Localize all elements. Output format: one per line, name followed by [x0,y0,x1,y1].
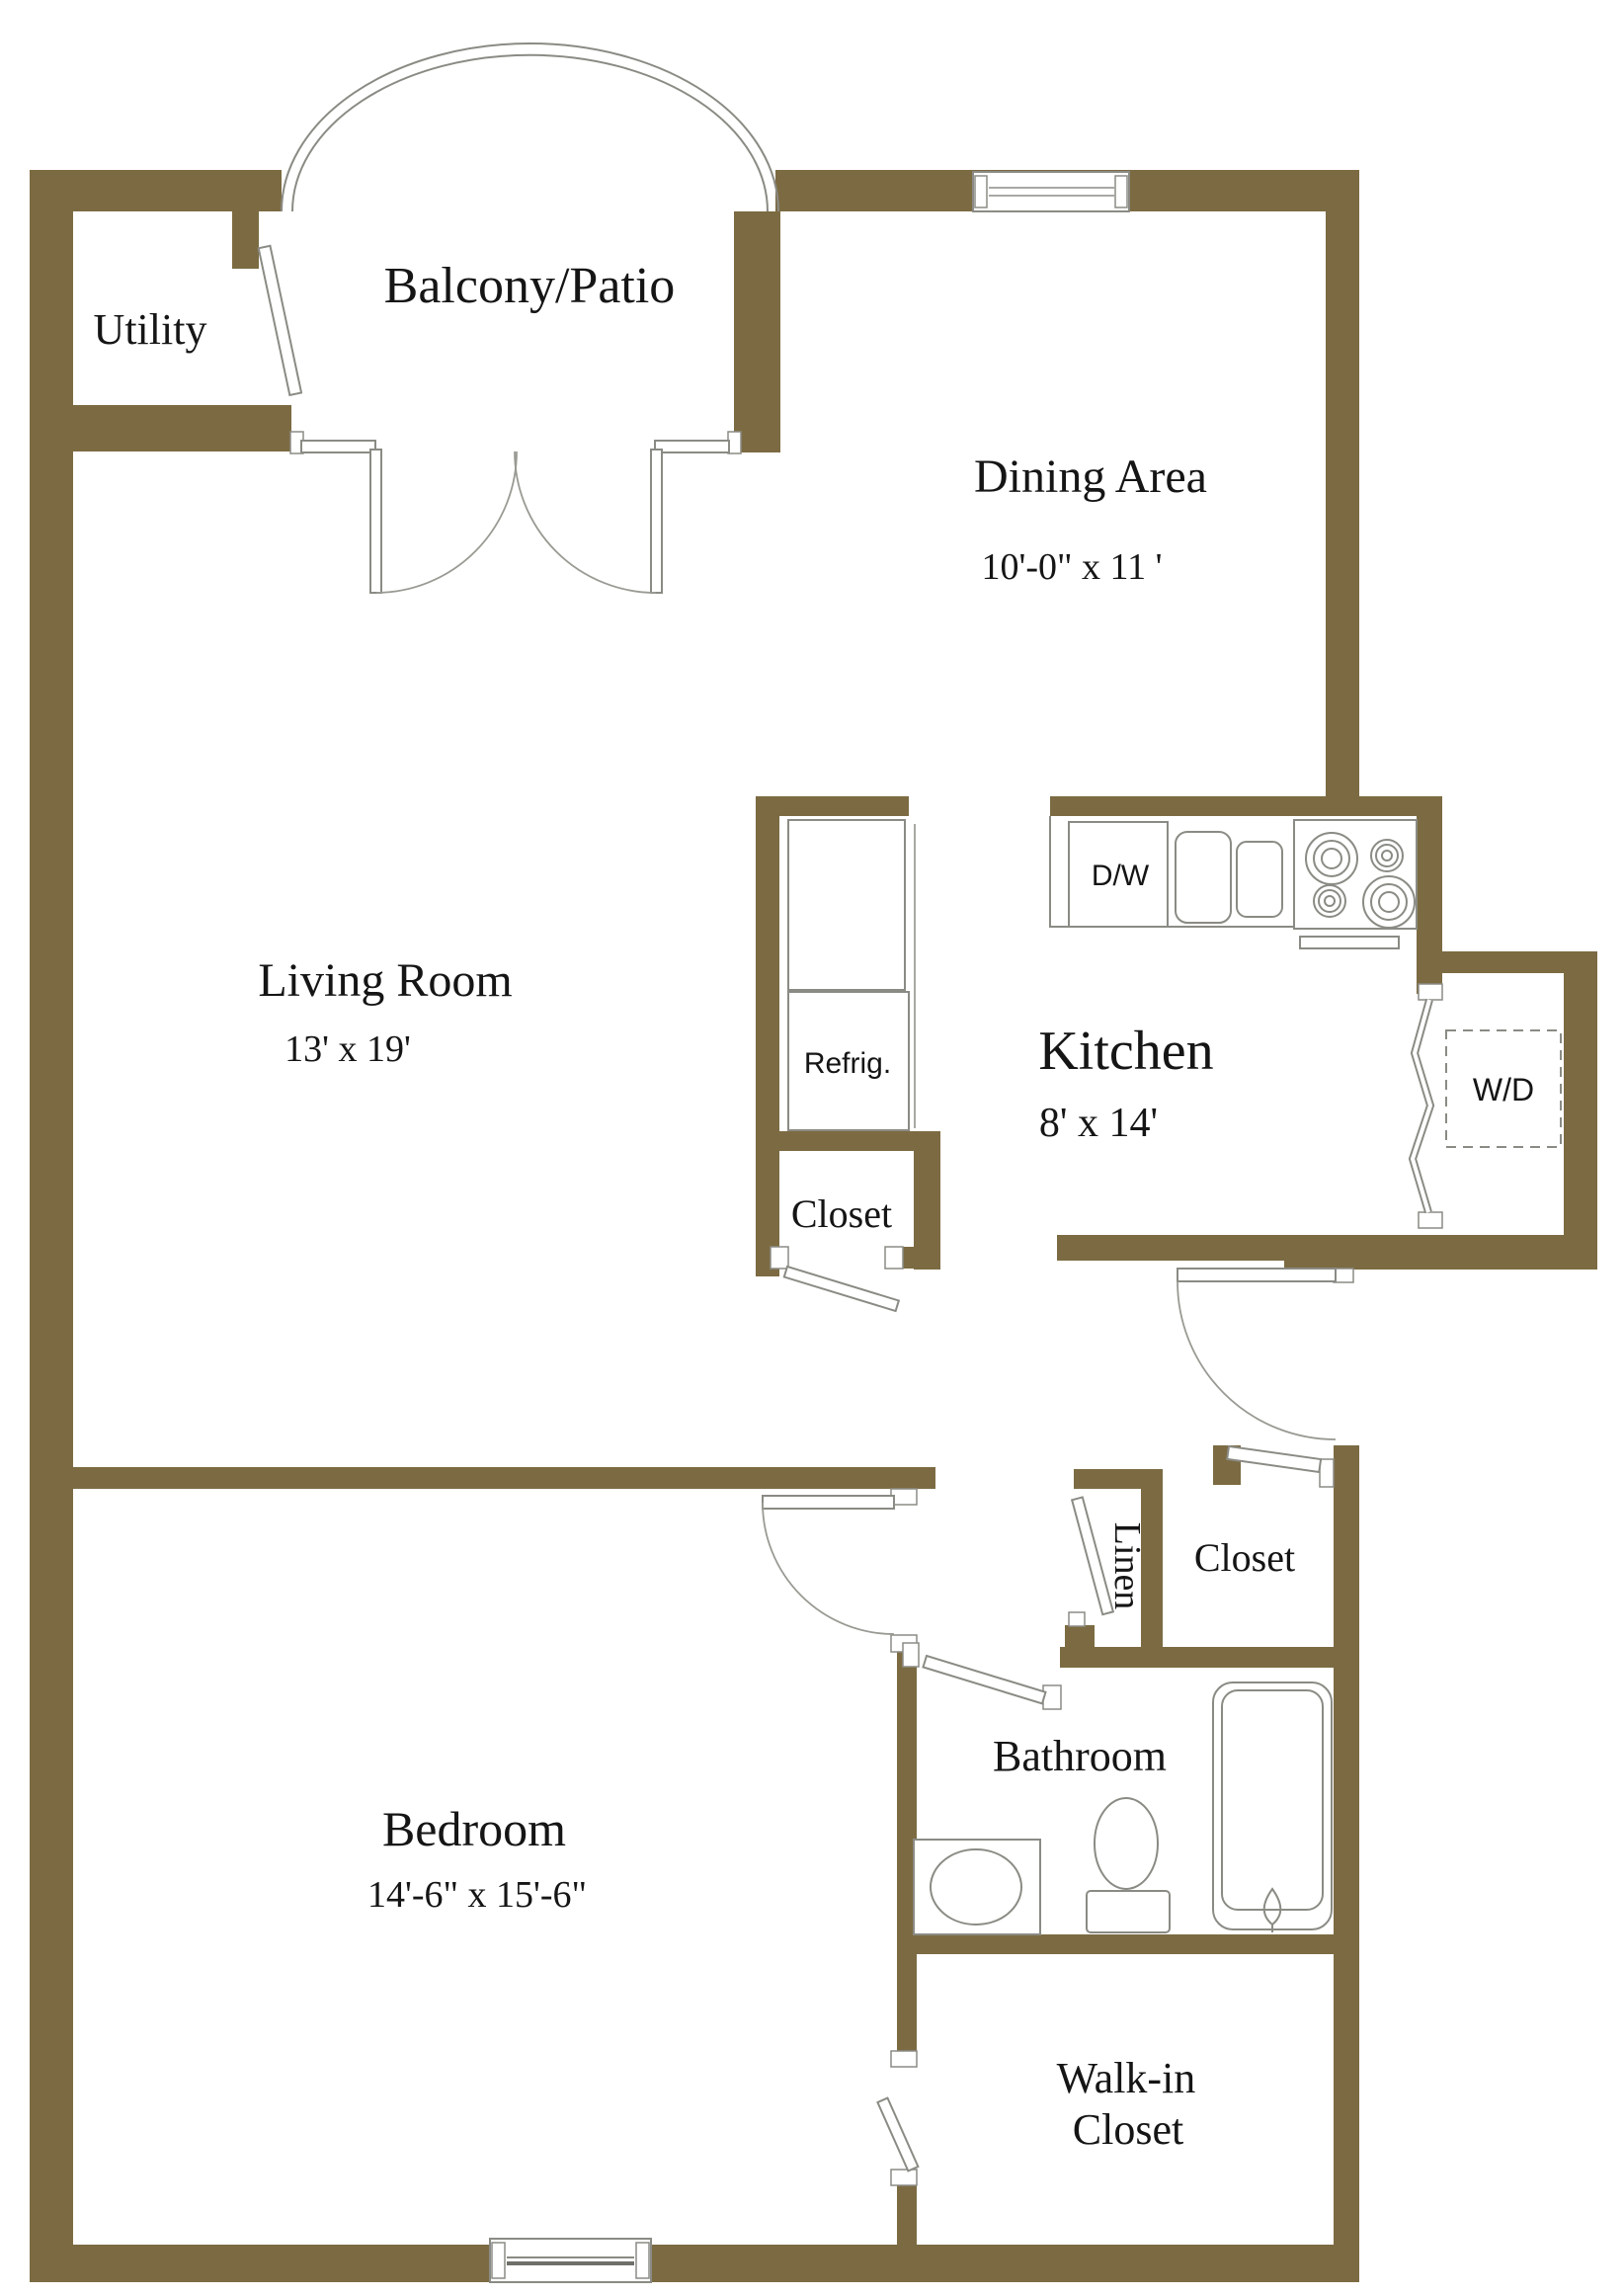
sink-basin-right [1237,842,1282,917]
wall-bedroom-right-lower [897,2185,917,2245]
arch-outer-line [282,43,778,211]
window-post-right [636,2243,649,2278]
door-jamb-left [903,1643,919,1667]
label-washer-dryer: W/D [1473,1072,1534,1107]
label-utility: Utility [94,305,207,354]
wall-left-outer [30,170,73,2282]
label-pantry-closet: Closet [791,1191,892,1236]
wall-utility-right-stub [232,211,259,269]
label-dishwasher: D/W [1092,860,1150,892]
door-leaf-open [1177,1269,1336,1281]
dining-window [973,172,1129,211]
label-refrigerator: Refrig. [804,1047,891,1080]
door-leaf [784,1267,899,1311]
stove-drawer [1300,937,1399,948]
door-frame-right [655,441,729,452]
bedroom-window [490,2239,651,2282]
label-balcony-patio: Balcony/Patio [384,258,676,314]
label-kitchen-dims: 8' x 14' [1039,1101,1158,1146]
hall-closet-door [1227,1446,1334,1487]
window-post-left [975,176,987,207]
door-leaf [259,246,301,395]
toilet-tank [1087,1891,1170,1932]
door-leaf [923,1656,1045,1703]
door-jamb [1320,1459,1334,1487]
wall-pantry-left [756,796,779,1276]
bathtub-outer [1213,1682,1332,1929]
wall-linen-top [1074,1469,1163,1489]
label-walkin-line2: Closet [1073,2105,1183,2154]
utility-door [259,246,301,395]
bedroom-door [763,1489,917,1652]
label-living-dims: 13' x 19' [284,1028,411,1070]
walkin-closet-door [877,2051,918,2185]
wall-closet-bath-right [1334,1445,1359,2282]
door-leaf [1227,1446,1321,1472]
wall-pantry-closet-bottom-right [901,1247,940,1269]
bathroom-door [903,1643,1061,1709]
door-leaf-right [651,450,662,593]
pantry-closet-door [771,1247,903,1311]
floorplan-drawing: Utility Balcony/Patio Dining Area 10'-0"… [0,0,1624,2296]
wall-right-outer [1564,951,1597,1270]
label-kitchen: Kitchen [1038,1021,1213,1082]
pantry-cabinet-box [788,820,905,990]
door-frame-left [301,441,375,452]
window-frame [973,172,1129,211]
label-bathroom: Bathroom [993,1732,1167,1780]
door-jamb-top [891,2051,917,2067]
label-dining-dims: 10'-0" x 11 ' [982,546,1163,588]
wall-kitchen-bottom-right [1284,1235,1597,1270]
wall-dining-right [1326,211,1359,796]
wall-living-bedroom-divider [73,1467,935,1489]
door-jamb-left [771,1247,788,1269]
wall-utility-bottom [30,405,291,451]
wall-top-left [30,170,282,211]
door-jamb-bottom [891,2170,917,2185]
door-jamb-right [1043,1685,1061,1709]
accordion-jamb-top [1419,984,1442,1000]
door-leaf-left [370,450,381,593]
wall-balcony-dining-divider [734,211,780,452]
door-swing [1177,1281,1336,1439]
bathroom-fixtures [914,1682,1332,1934]
label-walkin-line1: Walk-in [1057,2054,1196,2102]
door-swing-left [376,451,517,593]
balcony-french-doors [290,432,741,593]
wall-bathroom-bottom [914,1934,1334,1954]
label-hall-closet: Closet [1194,1535,1295,1580]
door-jamb-right [885,1247,903,1269]
door-leaf [877,2098,918,2172]
floorplan-sheet: Utility Balcony/Patio Dining Area 10'-0"… [0,0,1624,2296]
balcony-arch [282,43,778,211]
accordion-jamb-bottom [1419,1212,1442,1228]
door-swing-right [515,451,656,593]
pantry-refrigerator [788,820,915,1130]
door-swing [763,1503,894,1634]
arch-inner-line [292,55,768,211]
wall-bottom-outer [30,2245,1359,2282]
door-jamb [1069,1612,1085,1626]
hall-entry-door [1177,1269,1353,1439]
sink-basin-left [1176,832,1231,923]
label-bedroom-dims: 14'-6" x 15'-6" [367,1874,587,1916]
label-dining-area: Dining Area [974,451,1207,503]
label-linen: Linen [1106,1522,1148,1610]
wall-linen-bottom-post [1065,1625,1095,1650]
window-post-left [492,2243,505,2278]
window-post-right [1115,176,1127,207]
door-leaf-open [763,1496,894,1509]
label-bedroom: Bedroom [382,1801,566,1856]
wall-bathroom-top [1060,1647,1334,1668]
window-frame [490,2239,651,2282]
wall-kitchen-top [1050,796,1442,816]
label-living-room: Living Room [258,954,512,1007]
toilet-bowl [1095,1798,1158,1889]
wall-refrig-bottom [756,1131,940,1151]
